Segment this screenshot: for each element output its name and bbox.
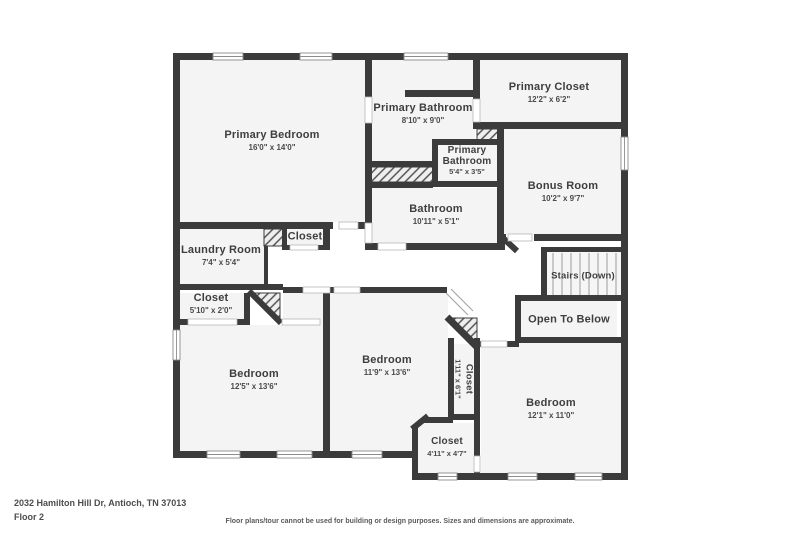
room-label-closet-left: Closet 5'10" x 2'0" [190, 292, 233, 316]
address-text: 2032 Hamilton Hill Dr, Antioch, TN 37013 [14, 498, 186, 508]
diagonal-opening [446, 289, 473, 315]
room-label-bathroom: Bathroom 10'11" x 5'1" [409, 203, 463, 227]
disclaimer-text: Floor plans/tour cannot be used for buil… [0, 518, 800, 525]
room-label-open-to-below: Open To Below [528, 313, 610, 326]
room-label-closet-bottom: Closet 4'11" x 4'7" [427, 436, 466, 458]
room-label-bonus-room: Bonus Room 10'2" x 9'7" [528, 180, 598, 204]
room-label-stairs: Stairs (Down) [551, 270, 615, 281]
room-label-primary-closet: Primary Closet 12'2" x 6'2" [509, 81, 589, 105]
room-label-bedroom-left: Bedroom 12'5" x 13'6" [229, 368, 279, 392]
room-label-primary-bathroom: Primary Bathroom 8'10" x 9'0" [373, 102, 472, 126]
room-label-bedroom-right: Bedroom 12'1" x 11'0" [526, 397, 576, 421]
floor-plan-page: { "meta": { "address": "2032 Hamilton Hi… [0, 0, 800, 533]
room-label-closet-vertical: Closet 1'11" x 6'1" [453, 359, 474, 398]
room-label-primary-bedroom: Primary Bedroom 16'0" x 14'0" [224, 129, 319, 153]
room-label-hall-closet: Closet [288, 230, 323, 243]
room-label-laundry-room: Laundry Room 7'4" x 5'4" [181, 244, 261, 268]
room-label-bedroom-middle: Bedroom 11'9" x 13'6" [362, 354, 412, 378]
room-label-primary-bathroom-small: Primary Bathroom 5'4" x 3'5" [435, 145, 499, 177]
floor-plan-svg [0, 0, 800, 533]
